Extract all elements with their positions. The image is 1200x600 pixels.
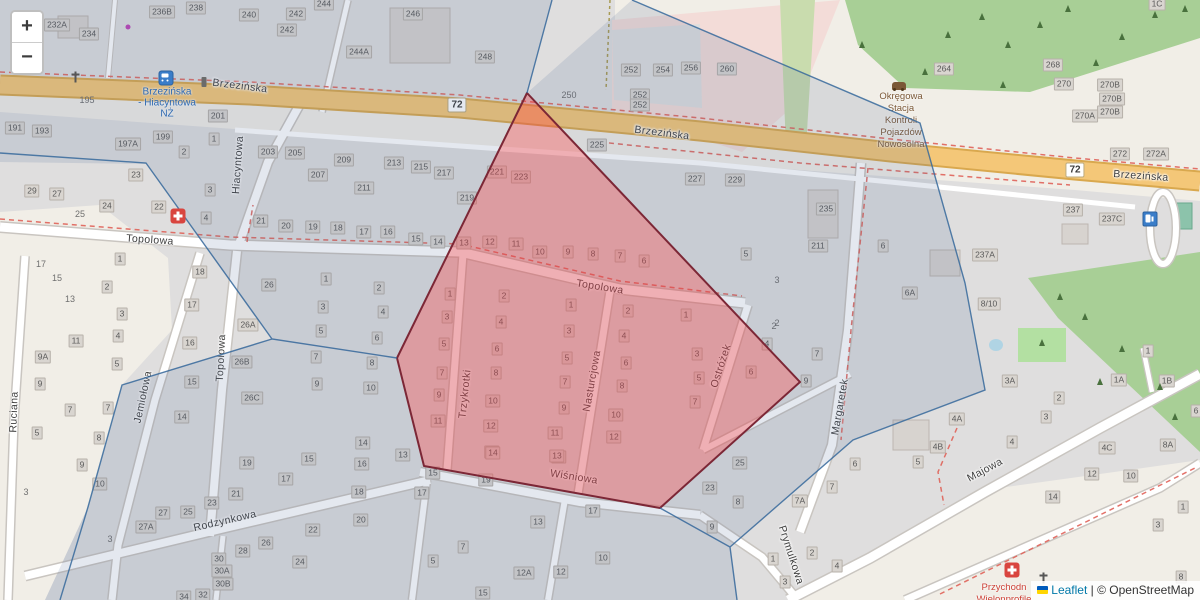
building — [1062, 224, 1088, 244]
attribution-bar: Leaflet | © OpenStreetMap — [1031, 581, 1200, 600]
building — [390, 8, 450, 63]
ukraine-flag-icon — [1037, 586, 1048, 594]
pond — [989, 339, 1003, 351]
zoom-out-button[interactable]: − — [12, 43, 42, 73]
zoom-control: + − — [10, 10, 44, 75]
attribution-separator: | — [1087, 583, 1097, 597]
building — [893, 420, 929, 450]
building — [808, 190, 838, 238]
building — [930, 250, 960, 276]
residential-block-252 — [612, 24, 702, 108]
building — [58, 16, 88, 38]
osm-link[interactable]: © OpenStreetMap — [1097, 583, 1194, 597]
map-canvas[interactable]: 232A234236B238240242242244244A2462482522… — [0, 0, 1200, 600]
leaflet-link[interactable]: Leaflet — [1051, 583, 1087, 597]
zoom-in-button[interactable]: + — [12, 12, 42, 43]
map-tiles — [0, 0, 1200, 600]
park-area — [1018, 328, 1066, 362]
